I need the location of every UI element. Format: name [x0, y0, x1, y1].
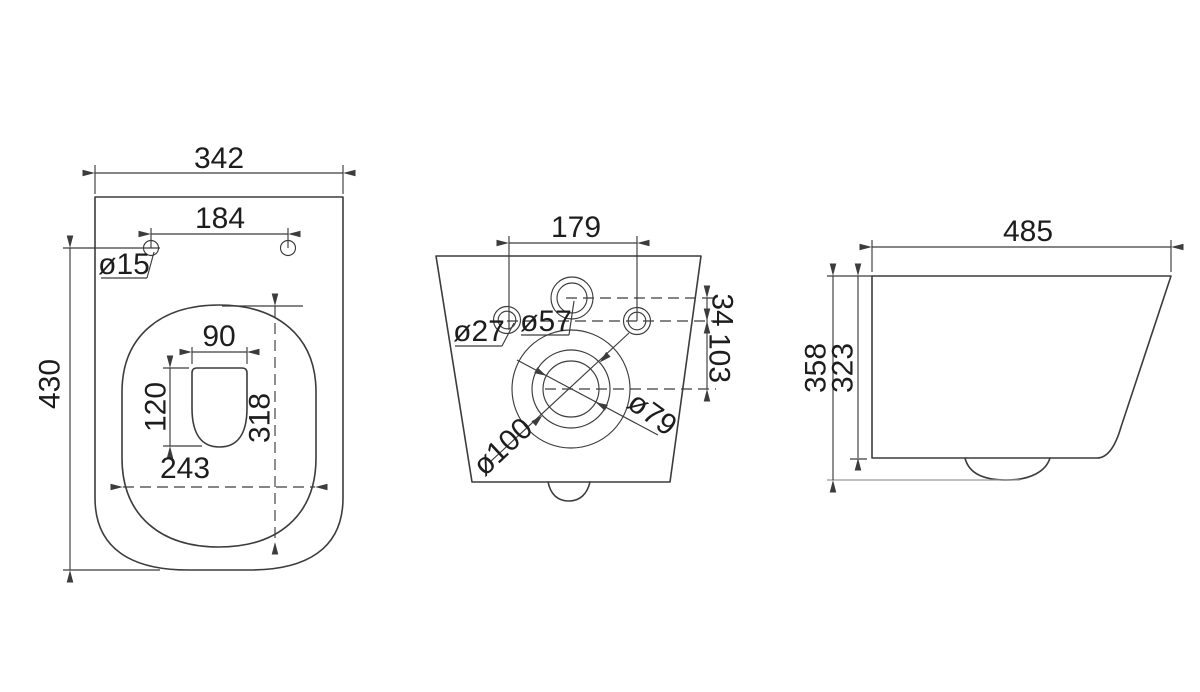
technical-drawing: 342 184 ø15 430 90 120 318 243: [0, 0, 1200, 692]
arrowhead: [596, 402, 608, 411]
dim-drain-inner-diameter: ø79: [621, 385, 682, 442]
dim-drain-outer-diameter: ø100: [467, 412, 540, 483]
dim-side-hole-to-drain-offset: 103: [703, 333, 736, 383]
drawing-canvas: 342 184 ø15 430 90 120 318 243: [0, 0, 1200, 692]
dim-side-hole-diameter: ø27: [453, 315, 505, 348]
dim-water-inlet-diameter: ø57: [520, 305, 572, 338]
dim-side-overall-depth: 485: [1003, 215, 1053, 248]
dim-bowl-opening-width: 90: [202, 320, 235, 353]
dim-hole-diameter: ø15: [98, 248, 150, 281]
side-view: 485 358 323: [800, 215, 1172, 480]
arrowhead: [600, 352, 611, 363]
dim-inner-rim-depth: 318: [244, 393, 277, 443]
dim-hole-spacing: 184: [195, 202, 245, 235]
side-body-outline: [872, 276, 1171, 458]
arrowhead: [534, 367, 546, 376]
rear-view: 179 ø27 ø57 34 103 ø100 ø79: [436, 211, 739, 501]
dim-inlet-hole-spacing: 179: [551, 211, 601, 244]
dim-overall-width: 342: [194, 142, 244, 175]
rear-trap-bump: [548, 482, 590, 501]
dim-inlet-vertical-offset: 34: [706, 293, 739, 326]
top-view: 342 184 ø15 430 90 120 318 243: [34, 142, 344, 570]
dim-bowl-opening-depth: 120: [140, 382, 173, 432]
arrowhead: [531, 416, 542, 427]
dim-overall-depth: 430: [34, 359, 67, 409]
dim-body-height: 323: [827, 343, 860, 393]
dim-inner-rim-width: 243: [160, 452, 210, 485]
side-trap-bump: [965, 458, 1050, 480]
flush-opening-outline: [192, 368, 247, 447]
